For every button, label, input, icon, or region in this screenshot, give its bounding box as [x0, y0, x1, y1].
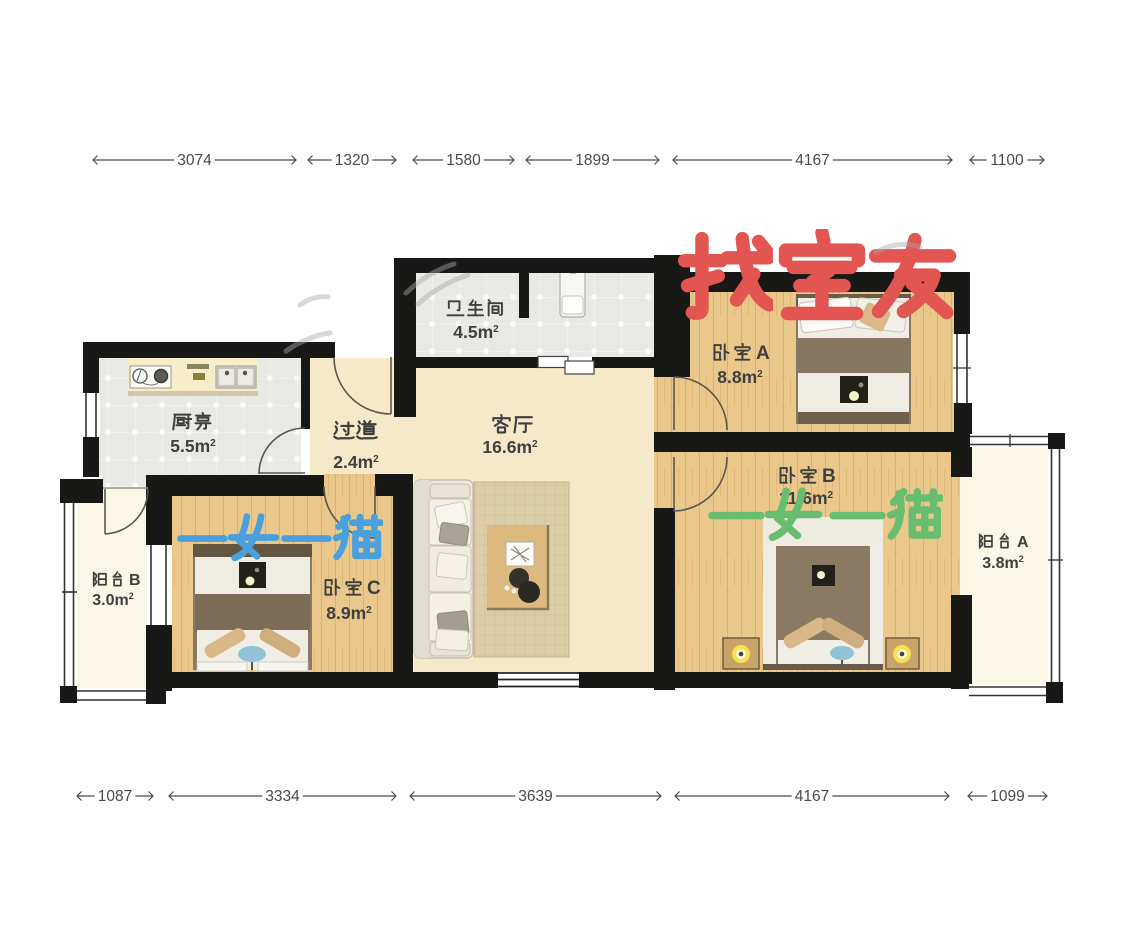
svg-text:3639: 3639 — [518, 788, 552, 805]
svg-text:1099: 1099 — [990, 788, 1024, 805]
svg-text:2.4m2: 2.4m2 — [333, 452, 379, 472]
svg-text:1100: 1100 — [990, 152, 1024, 169]
svg-text:8.8m2: 8.8m2 — [717, 367, 763, 387]
svg-text:1899: 1899 — [575, 152, 609, 169]
svg-text:A: A — [756, 343, 770, 364]
svg-text:4167: 4167 — [795, 152, 829, 169]
svg-text:4.5m2: 4.5m2 — [453, 322, 499, 342]
svg-text:A: A — [1017, 534, 1029, 551]
svg-text:1087: 1087 — [98, 788, 132, 805]
svg-text:8.9m2: 8.9m2 — [326, 603, 372, 623]
svg-text:16.6m2: 16.6m2 — [482, 437, 538, 457]
svg-text:3074: 3074 — [177, 152, 212, 169]
svg-text:3334: 3334 — [265, 788, 300, 805]
svg-text:3.0m2: 3.0m2 — [92, 591, 133, 609]
svg-text:4167: 4167 — [795, 788, 829, 805]
svg-text:5.5m2: 5.5m2 — [170, 436, 216, 456]
svg-text:1580: 1580 — [446, 152, 481, 169]
svg-text:3.8m2: 3.8m2 — [982, 554, 1023, 572]
svg-text:B: B — [822, 466, 836, 487]
svg-text:C: C — [367, 578, 381, 599]
svg-text:B: B — [129, 572, 141, 589]
svg-text:1320: 1320 — [335, 152, 370, 169]
